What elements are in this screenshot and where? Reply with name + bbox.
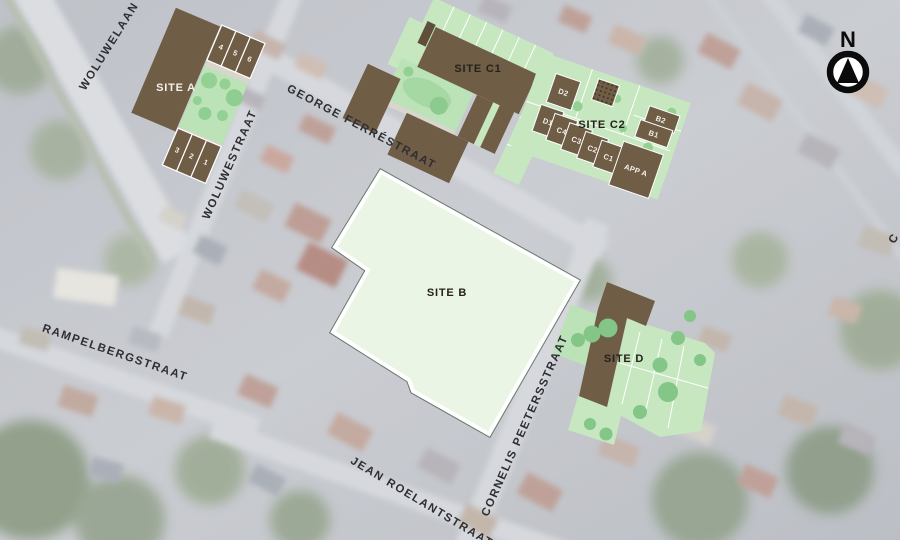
masterplan-map: SITE B 4 5 6 3 2 1 SITE A [0,0,900,540]
masterplan-svg: SITE B 4 5 6 3 2 1 SITE A [0,0,900,540]
site-c1-label: SITE C1 [454,63,501,75]
site-d-label: SITE D [604,353,644,365]
site-a-label: SITE A [156,82,196,94]
site-c2-label: SITE C2 [578,119,625,131]
site-b-label: SITE B [427,287,467,299]
north-arrow-label: N [840,27,856,52]
